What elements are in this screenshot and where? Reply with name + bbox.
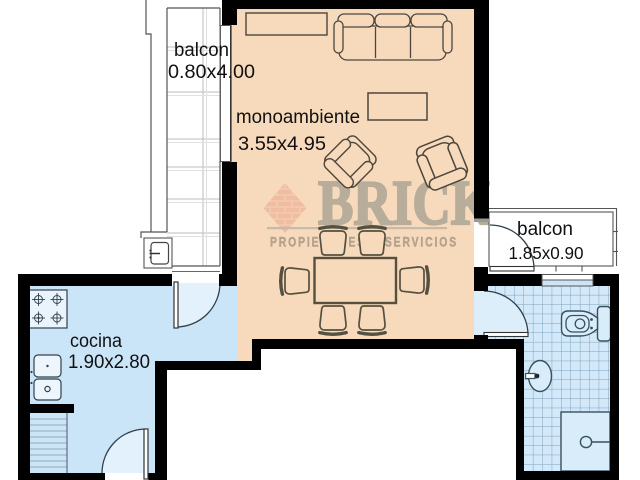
svg-text:0.80x4.00: 0.80x4.00	[168, 62, 255, 83]
svg-text:balcon: balcon	[517, 219, 573, 240]
svg-text:1.90x2.80: 1.90x2.80	[68, 352, 150, 373]
svg-text:balcon: balcon	[174, 40, 229, 61]
svg-text:cocina: cocina	[70, 331, 122, 352]
svg-text:3.55x4.95: 3.55x4.95	[238, 134, 326, 155]
svg-text:monoambiente: monoambiente	[236, 107, 360, 128]
svg-text:1.85x0.90: 1.85x0.90	[509, 243, 584, 263]
